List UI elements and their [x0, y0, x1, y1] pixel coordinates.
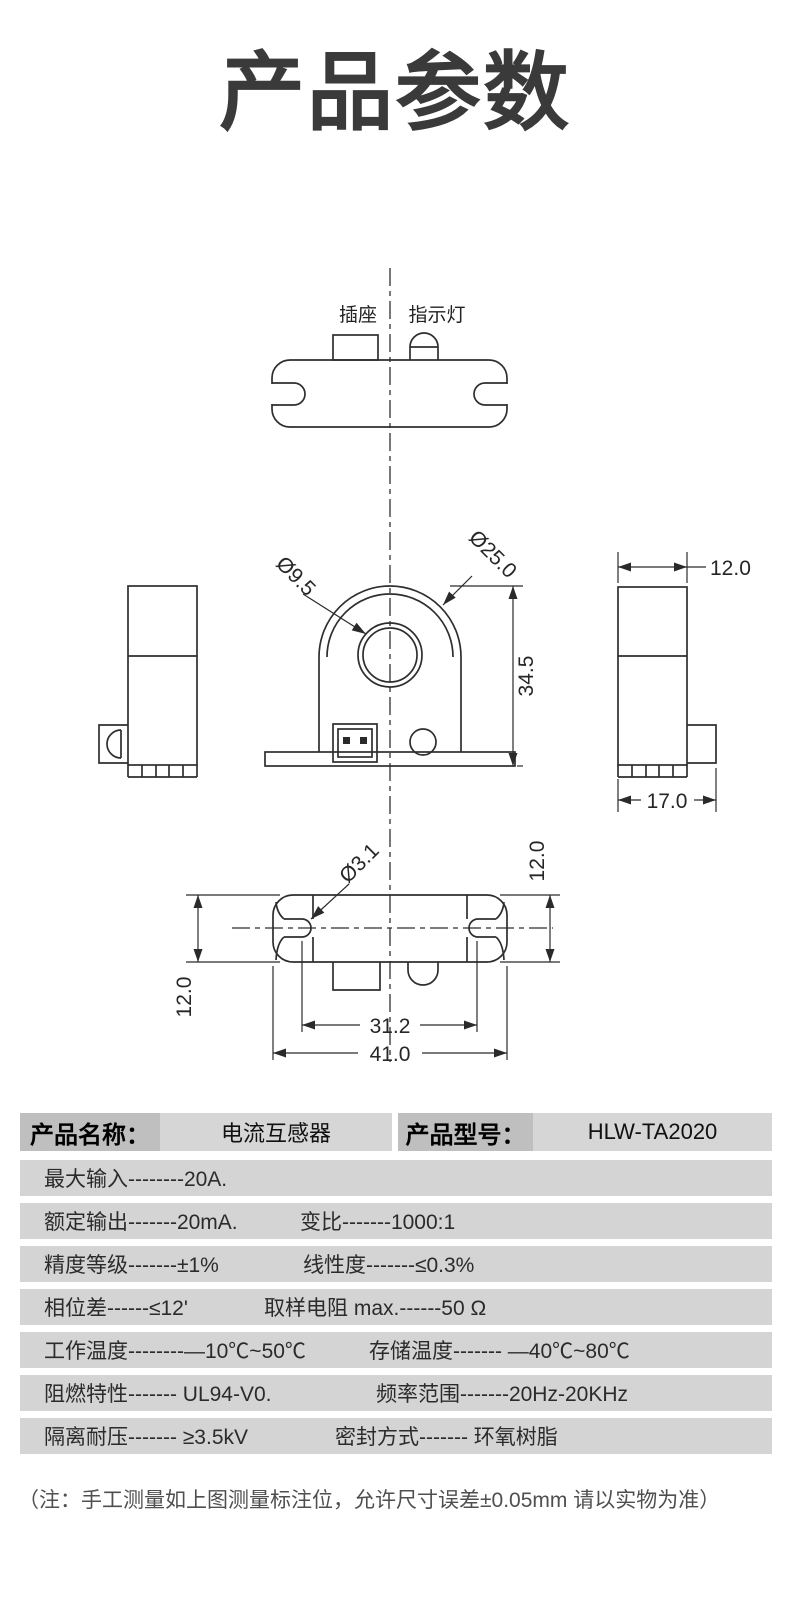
spec-row-flammability: 阻燃特性------- UL94-V0. 频率范围-------20Hz-20K… — [20, 1375, 772, 1411]
right-side-view: 12.0 17.0 — [618, 552, 751, 813]
left-side-view — [99, 586, 197, 777]
product-model-header: 产品型号： HLW-TA2020 — [398, 1113, 772, 1151]
spec-text: 工作温度--------—10℃~50℃ — [44, 1335, 306, 1365]
front-view: 34.5 Ø9.5 Ø25.0 — [265, 526, 538, 766]
spec-row-phase-diff: 相位差------≤12' 取样电阻 max.------50 Ω — [20, 1289, 772, 1325]
spec-row-max-input: 最大输入--------20A. — [20, 1160, 772, 1196]
dim-top-width: 12.0 — [710, 557, 751, 580]
spec-row-rated-output: 额定输出-------20mA. 变比-------1000:1 — [20, 1203, 772, 1239]
indicator-label: 指示灯 — [408, 304, 465, 326]
dim-depth-left: 12.0 — [173, 977, 196, 1018]
spec-row-accuracy: 精度等级-------±1% 线性度-------≤0.3% — [20, 1246, 772, 1282]
led-outline — [410, 729, 436, 755]
dim-base-width: 17.0 — [647, 790, 688, 813]
spec-text: 隔离耐压------- ≥3.5kV — [44, 1421, 248, 1451]
spec-text: 存储温度------- —40℃~80℃ — [369, 1335, 630, 1365]
spec-text: 阻燃特性------- UL94-V0. — [44, 1378, 272, 1408]
socket-outline — [333, 335, 378, 360]
technical-drawing: 插座 指示灯 34.5 Ø9.5 Ø25 — [0, 250, 790, 1070]
spec-text: 额定输出-------20mA. — [44, 1206, 238, 1236]
dim-inner-hole: Ø9.5 — [271, 552, 319, 600]
spec-text: 密封方式------- 环氧树脂 — [335, 1421, 558, 1451]
spec-row-temperature: 工作温度--------—10℃~50℃ 存储温度------- —40℃~80… — [20, 1332, 772, 1368]
spec-text: 相位差------≤12' — [44, 1292, 188, 1322]
spec-text: 线性度-------≤0.3% — [303, 1249, 474, 1279]
indicator-dome-outline — [410, 333, 438, 360]
page-title: 产品参数 — [0, 44, 790, 143]
dim-body-height: 34.5 — [515, 656, 538, 697]
product-name-header: 产品名称： 电流互感器 — [20, 1113, 392, 1151]
spec-text: 变比-------1000:1 — [300, 1206, 455, 1236]
spec-text: 精度等级-------±1% — [44, 1249, 219, 1279]
spec-text: 最大输入--------20A. — [44, 1163, 227, 1193]
dim-slot-spacing: 31.2 — [370, 1015, 411, 1038]
spec-text: 频率范围-------20Hz-20KHz — [376, 1378, 628, 1408]
measurement-note: （注：手工测量如上图测量标注位，允许尺寸误差±0.05mm 请以实物为准） — [18, 1484, 778, 1514]
dim-outer-dia: Ø25.0 — [464, 526, 521, 583]
bottom-view: 12.0 12.0 Ø3.1 31.2 — [173, 839, 560, 1066]
dim-depth-right: 12.0 — [526, 841, 549, 882]
product-name-label: 产品名称： — [20, 1113, 160, 1151]
spec-text: 取样电阻 max.------50 Ω — [264, 1292, 486, 1322]
product-model-value: HLW-TA2020 — [533, 1113, 772, 1151]
product-parameters-page: 产品参数 插座 指示灯 — [0, 0, 790, 1619]
product-name-value: 电流互感器 — [160, 1113, 392, 1151]
dim-slot-dia: Ø3.1 — [335, 839, 383, 887]
socket-label: 插座 — [339, 304, 377, 326]
spec-row-isolation: 隔离耐压------- ≥3.5kV 密封方式------- 环氧树脂 — [20, 1418, 772, 1454]
dim-overall-width: 41.0 — [370, 1043, 411, 1066]
product-model-label: 产品型号： — [398, 1113, 533, 1151]
